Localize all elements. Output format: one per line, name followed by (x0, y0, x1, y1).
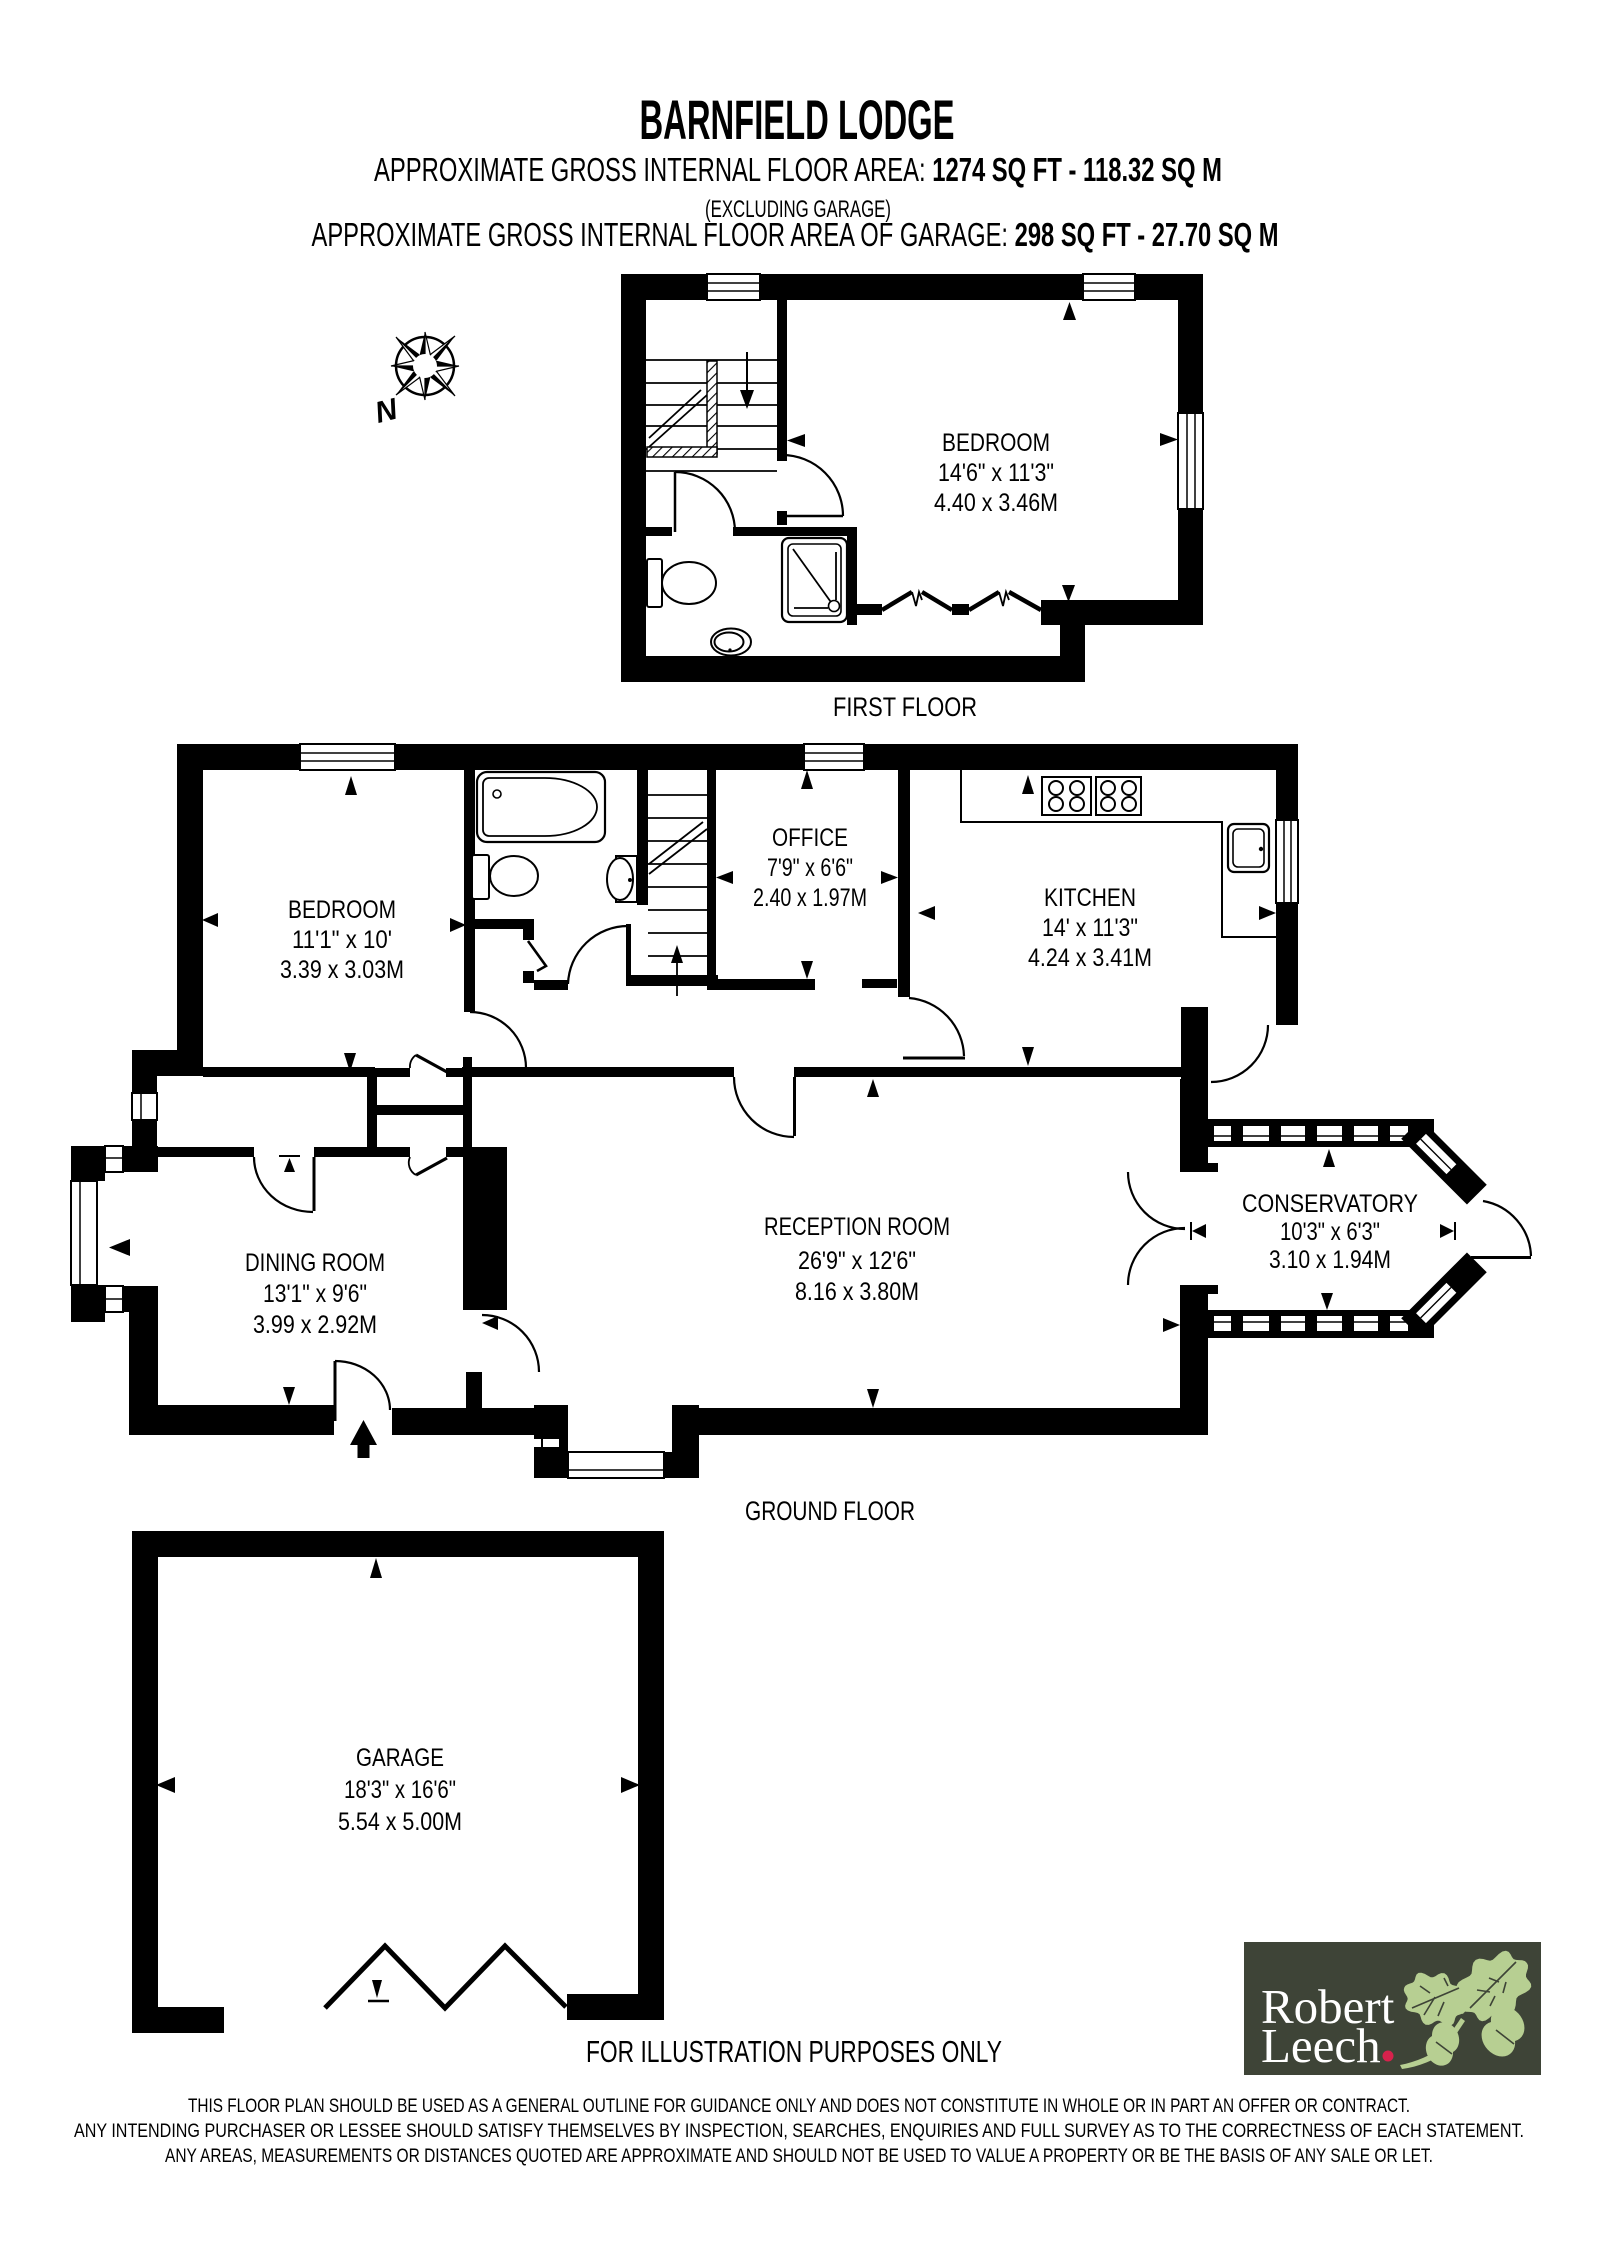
svg-text:BEDROOM: BEDROOM (942, 429, 1050, 457)
svg-text:7'9" x 6'6": 7'9" x 6'6" (767, 854, 853, 882)
svg-text:Leech: Leech (1261, 2018, 1381, 2073)
svg-text:11'1" x 10': 11'1" x 10' (292, 926, 392, 954)
svg-text:ANY AREAS, MEASUREMENTS OR DIS: ANY AREAS, MEASUREMENTS OR DISTANCES QUO… (165, 2146, 1433, 2167)
svg-text:14' x 11'3": 14' x 11'3" (1042, 914, 1138, 942)
svg-text:4.24 x 3.41M: 4.24 x 3.41M (1028, 944, 1152, 972)
svg-text:APPROXIMATE GROSS INTERNAL FL: APPROXIMATE GROSS INTERNAL FLOOR AREA: 1… (374, 151, 1222, 188)
svg-text:GARAGE: GARAGE (356, 1744, 444, 1772)
svg-text:ANY INTENDING PURCHASER OR LES: ANY INTENDING PURCHASER OR LESSEE SHOULD… (74, 2121, 1524, 2142)
svg-text:8.16 x 3.80M: 8.16 x 3.80M (795, 1278, 919, 1306)
svg-text:GROUND FLOOR: GROUND FLOOR (745, 1496, 915, 1526)
svg-text:18'3" x 16'6": 18'3" x 16'6" (344, 1776, 456, 1804)
svg-text:THIS FLOOR PLAN SHOULD BE USED: THIS FLOOR PLAN SHOULD BE USED AS A GENE… (188, 2096, 1410, 2117)
svg-text:13'1" x 9'6": 13'1" x 9'6" (263, 1280, 367, 1308)
svg-text:5.54 x 5.00M: 5.54 x 5.00M (338, 1808, 462, 1836)
svg-text:KITCHEN: KITCHEN (1044, 884, 1136, 912)
svg-text:OFFICE: OFFICE (772, 824, 848, 852)
svg-text:26'9" x 12'6": 26'9" x 12'6" (798, 1247, 916, 1275)
svg-text:10'3" x 6'3": 10'3" x 6'3" (1280, 1218, 1380, 1246)
svg-text:RECEPTION ROOM: RECEPTION ROOM (764, 1213, 950, 1241)
svg-text:14'6" x 11'3": 14'6" x 11'3" (938, 459, 1054, 487)
svg-text:APPROXIMATE GROSS INTERNAL FLO: APPROXIMATE GROSS INTERNAL FLOOR AREA OF… (312, 216, 1279, 253)
svg-text:BEDROOM: BEDROOM (288, 896, 396, 924)
svg-text:FIRST FLOOR: FIRST FLOOR (833, 692, 977, 722)
svg-text:3.10 x 1.94M: 3.10 x 1.94M (1269, 1246, 1391, 1274)
svg-text:FOR ILLUSTRATION PURPOSES ONLY: FOR ILLUSTRATION PURPOSES ONLY (586, 2034, 1002, 2069)
svg-text:DINING ROOM: DINING ROOM (245, 1249, 385, 1277)
svg-text:3.39 x 3.03M: 3.39 x 3.03M (280, 956, 404, 984)
svg-text:4.40 x 3.46M: 4.40 x 3.46M (934, 489, 1058, 517)
svg-text:BARNFIELD LODGE: BARNFIELD LODGE (640, 88, 955, 151)
svg-text:2.40 x 1.97M: 2.40 x 1.97M (753, 884, 867, 912)
svg-text:3.99 x 2.92M: 3.99 x 2.92M (253, 1311, 377, 1339)
svg-text:CONSERVATORY: CONSERVATORY (1242, 1190, 1418, 1218)
